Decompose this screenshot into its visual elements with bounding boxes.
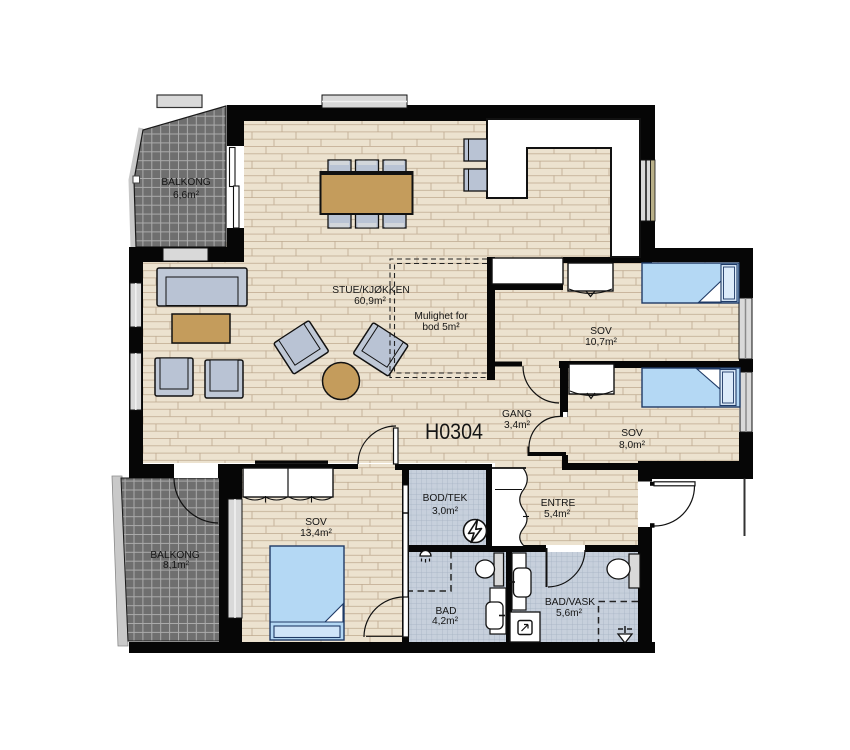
svg-text:8,0m²: 8,0m² (619, 440, 646, 451)
svg-text:BOD/TEK: BOD/TEK (423, 493, 468, 504)
svg-text:6,6m²: 6,6m² (173, 190, 200, 201)
svg-text:5,4m²: 5,4m² (544, 509, 571, 520)
svg-text:GANG: GANG (502, 409, 532, 420)
svg-text:3,0m²: 3,0m² (432, 506, 459, 517)
svg-text:13,4m²: 13,4m² (300, 528, 332, 539)
svg-text:Mulighet for: Mulighet for (414, 311, 468, 322)
svg-text:5,6m²: 5,6m² (556, 608, 583, 619)
svg-text:bod 5m²: bod 5m² (422, 322, 460, 333)
svg-text:BAD/VASK: BAD/VASK (545, 597, 595, 608)
svg-text:BALKONG: BALKONG (161, 177, 210, 188)
svg-text:10,7m²: 10,7m² (585, 337, 617, 348)
svg-text:ENTRE: ENTRE (541, 498, 576, 509)
svg-text:SOV: SOV (590, 326, 612, 337)
svg-text:3,4m²: 3,4m² (504, 420, 531, 431)
svg-text:SOV: SOV (621, 428, 643, 439)
svg-text:8,1m²: 8,1m² (163, 560, 190, 571)
svg-text:H0304: H0304 (425, 419, 483, 444)
svg-text:SOV: SOV (305, 517, 327, 528)
svg-text:STUE/KJØKKEN: STUE/KJØKKEN (332, 285, 410, 296)
svg-text:4,2m²: 4,2m² (432, 616, 459, 627)
svg-text:60,9m²: 60,9m² (354, 296, 386, 307)
